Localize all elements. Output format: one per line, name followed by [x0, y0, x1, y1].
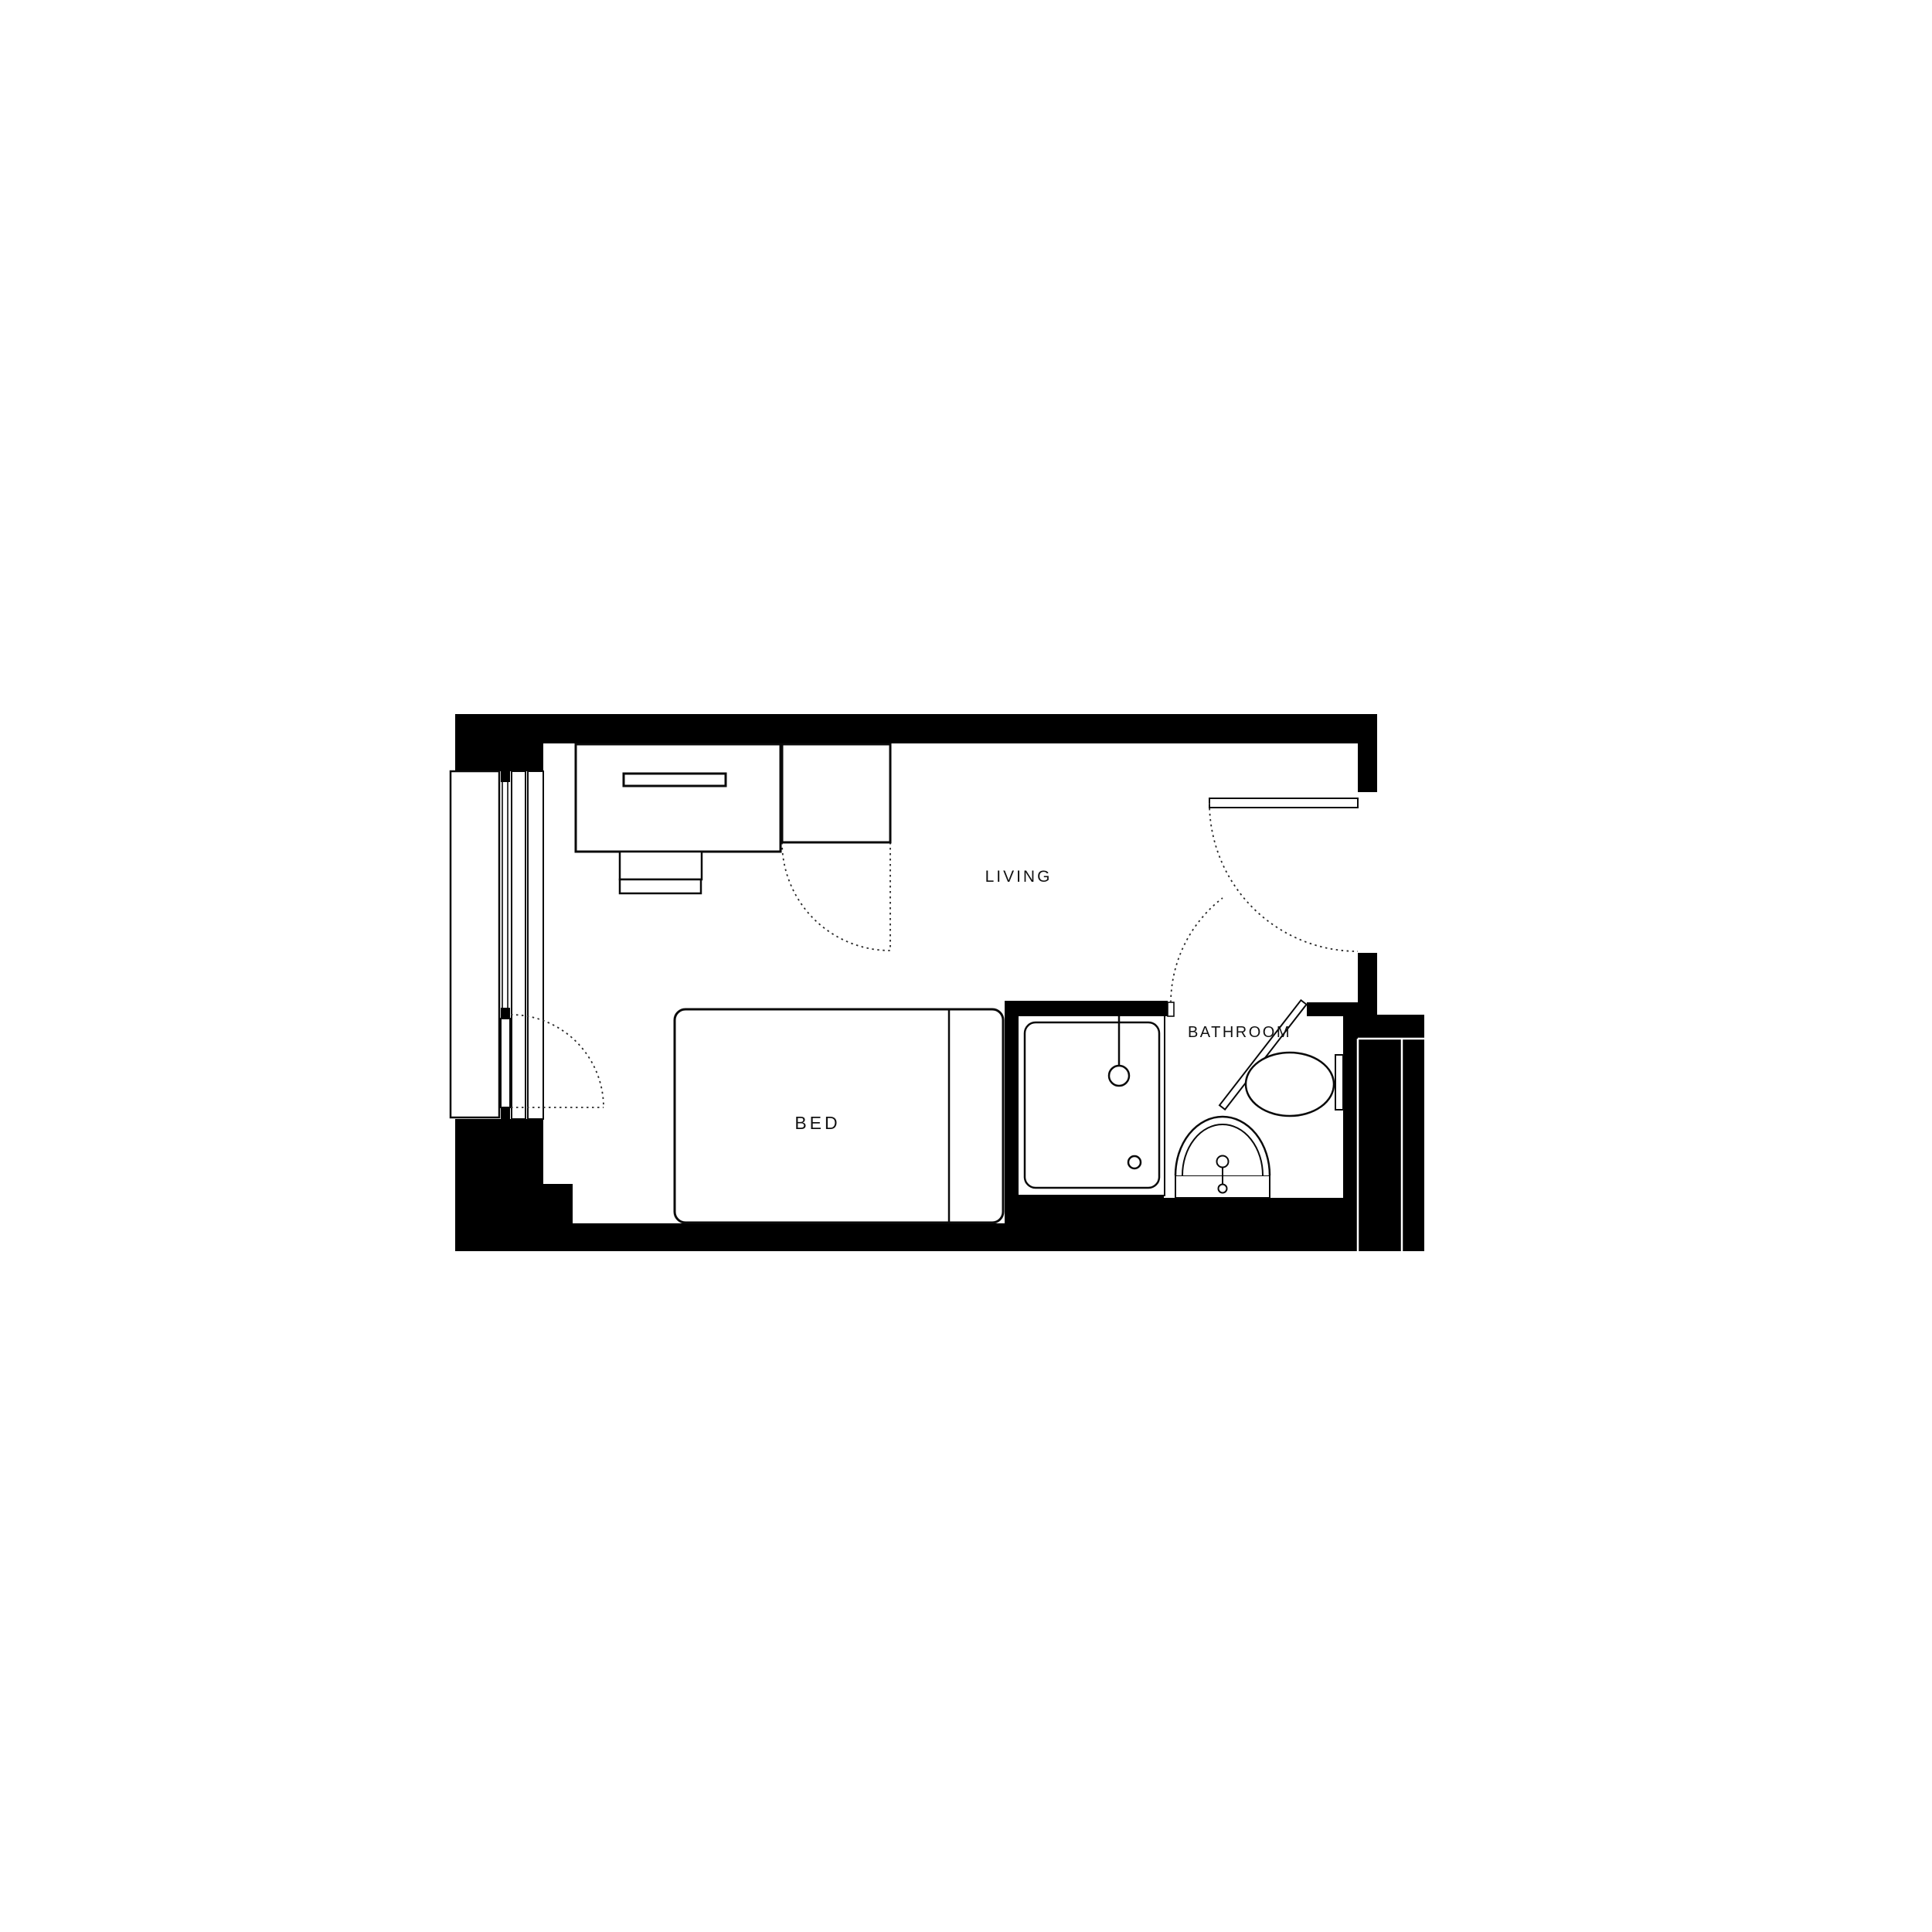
wall-bottom-step	[543, 1184, 573, 1251]
window-band-outer	[528, 771, 543, 1119]
window-mullion-top	[501, 771, 510, 782]
furniture	[576, 744, 1003, 1223]
wall-shower-top-bar	[1005, 1001, 1168, 1016]
toilet-bowl-icon	[1246, 1053, 1334, 1116]
bathroom-door-swing-arc	[1171, 898, 1223, 1002]
bathroom-label: BATHROOM	[1188, 1024, 1291, 1041]
entry-door-swing-arc	[1209, 803, 1358, 951]
wall-top-left-block	[455, 743, 543, 771]
window-mullion-middle	[501, 1008, 510, 1019]
chair-seat	[620, 852, 702, 879]
sink-faucet-drop	[1219, 1185, 1227, 1193]
desk	[576, 744, 781, 852]
floor-plan-page: LIVING BED BATHROOM	[0, 0, 1932, 1932]
living-label: LIVING	[985, 868, 1053, 886]
wall-bottom-left-block	[455, 1119, 543, 1251]
toilet-cistern	[1335, 1055, 1343, 1110]
wall-bottom-main	[573, 1223, 1424, 1251]
wardrobe	[782, 744, 890, 842]
wall-top	[455, 714, 1377, 743]
bathroom-door-stub	[1168, 1002, 1174, 1016]
bed-label: BED	[794, 1113, 840, 1133]
window-mullion-bottom	[501, 1107, 510, 1119]
shower-drain-icon	[1128, 1156, 1141, 1168]
chair-back	[620, 879, 701, 893]
wall-bathroom-door-bar	[1307, 1002, 1358, 1016]
wall-entry-jamb-upper	[1358, 743, 1377, 792]
bathroom-fixtures	[1025, 1016, 1343, 1198]
wall-right-mass	[1343, 1015, 1424, 1251]
wall-shower-left	[1005, 1001, 1019, 1251]
window-assembly	[451, 771, 543, 1119]
entry-door-leaf	[1209, 798, 1358, 808]
wall-under-shower	[1019, 1195, 1164, 1226]
desk-slot	[624, 774, 726, 786]
wardrobe-door-swing-arc	[782, 842, 890, 951]
floor-plan-drawing: LIVING BED BATHROOM	[0, 0, 1932, 1932]
window-band-inner	[512, 771, 526, 1119]
wall-under-sink	[1164, 1198, 1343, 1226]
sink-faucet-icon	[1217, 1156, 1229, 1168]
shower-head-icon	[1109, 1066, 1129, 1086]
balcony-door-leaf	[501, 1019, 510, 1107]
wall-entry-jamb-lower	[1358, 953, 1377, 1015]
window-outer-frame	[451, 771, 499, 1117]
